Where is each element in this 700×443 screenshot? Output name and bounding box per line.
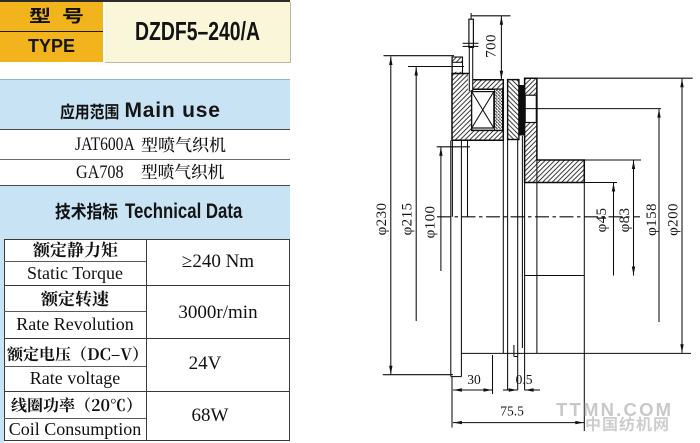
svg-text:0.5: 0.5 — [516, 372, 533, 387]
svg-text:30: 30 — [467, 372, 481, 387]
svg-text:φ45: φ45 — [594, 208, 610, 233]
svg-text:700: 700 — [484, 34, 500, 58]
svg-text:φ200: φ200 — [666, 203, 682, 236]
svg-text:φ215: φ215 — [400, 203, 416, 236]
svg-text:75.5: 75.5 — [500, 404, 524, 419]
svg-text:φ100: φ100 — [423, 206, 439, 239]
svg-text:φ230: φ230 — [374, 203, 390, 236]
svg-text:φ83: φ83 — [617, 208, 633, 233]
svg-text:φ158: φ158 — [644, 203, 660, 236]
